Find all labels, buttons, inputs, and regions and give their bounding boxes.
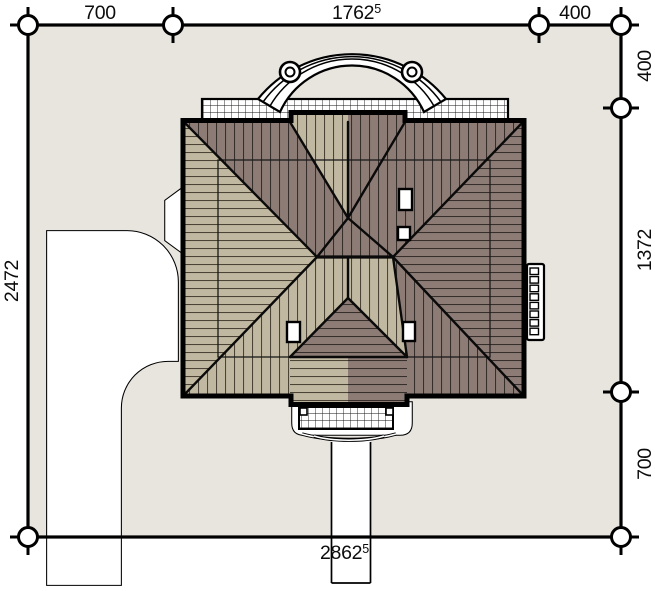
rear-porch	[293, 403, 411, 434]
house-roof	[183, 112, 524, 405]
site-plan-drawing: 700 17625 400 400 1372 700 2472 28625	[0, 0, 655, 591]
dim-right-1: 400	[634, 50, 655, 82]
chimney	[398, 227, 410, 240]
chimney	[403, 322, 415, 341]
dim-right-3: 700	[634, 448, 655, 480]
chimney	[399, 189, 412, 210]
rear-trellis-grid	[299, 407, 393, 429]
dim-bottom-total: 28625	[320, 542, 369, 564]
chimney	[287, 322, 300, 342]
dim-top-1: 700	[84, 2, 116, 24]
side-steps	[527, 264, 544, 340]
site-plan-svg: 700 17625 400 400 1372 700 2472 28625	[0, 0, 655, 591]
bay-window	[166, 190, 181, 251]
dim-top-2: 17625	[332, 2, 381, 24]
dim-left-total: 2472	[1, 260, 23, 302]
rear-porch-post-left	[300, 408, 307, 415]
dim-right-2: 1372	[634, 229, 655, 271]
dim-top-3: 400	[559, 2, 591, 24]
rear-porch-post-right	[386, 408, 393, 415]
